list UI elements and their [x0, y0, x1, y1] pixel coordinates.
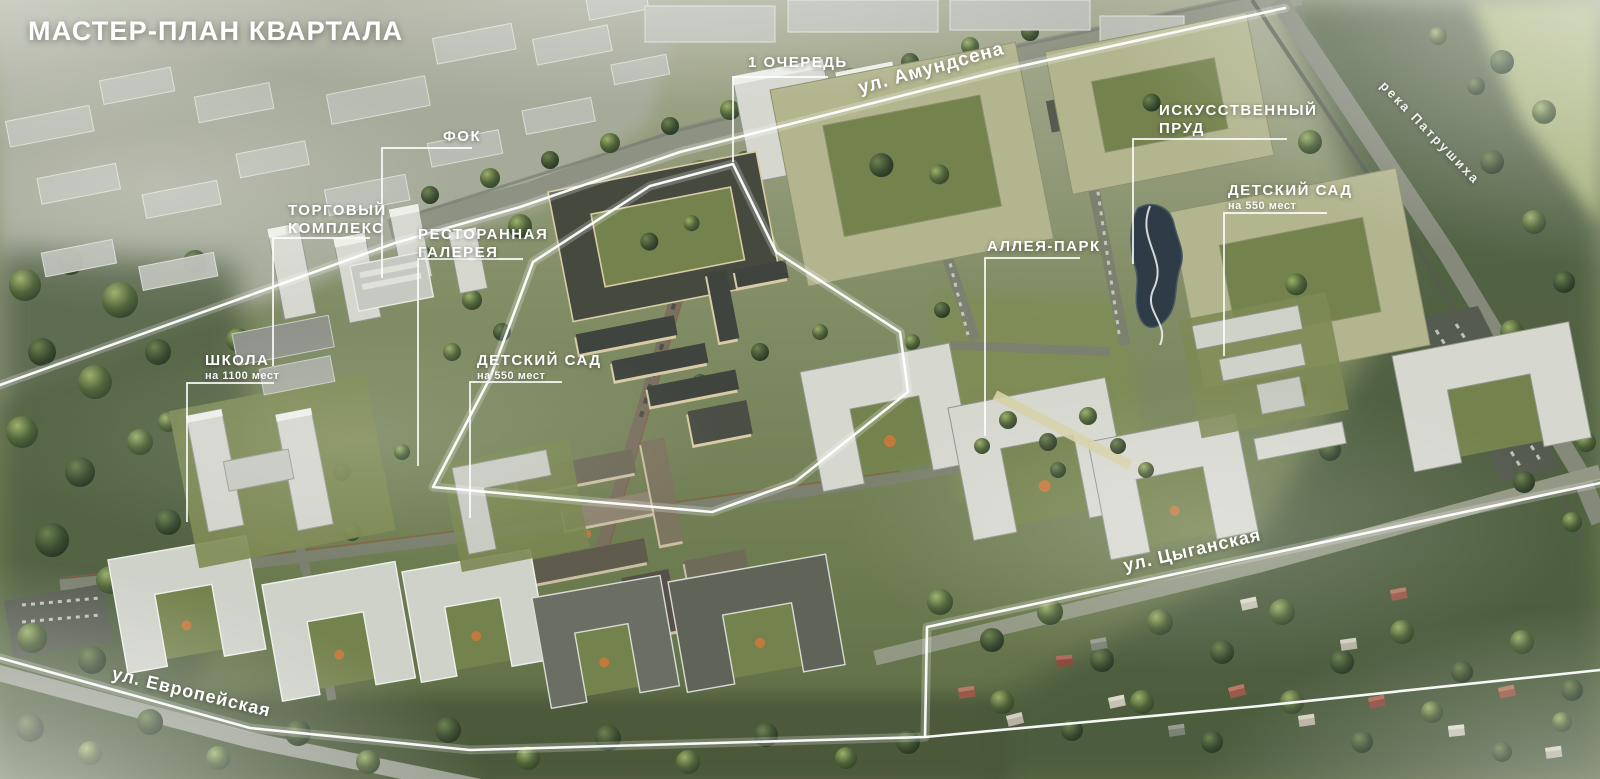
callout-pond-line1: ИСКУССТВЕННЫЙ: [1159, 102, 1317, 120]
callout-school-capacity: на 1100 мест: [205, 370, 279, 383]
callout-school: ШКОЛА на 1100 мест: [205, 352, 279, 383]
callout-shopping-line2: КОМПЛЕКС: [288, 220, 387, 238]
callout-alley-label: АЛЛЕЯ-ПАРК: [987, 238, 1101, 255]
callout-shopping-complex: ТОРГОВЫЙ КОМПЛЕКС: [288, 202, 387, 237]
masterplan-slide: МАСТЕР-ПЛАН КВАРТАЛА 1 ОЧЕРЕДЬ ФОК ТОРГО…: [0, 0, 1600, 779]
callout-restaurant-gallery: РЕСТОРАННАЯ ГАЛЕРЕЯ: [418, 226, 548, 261]
callout-school-label: ШКОЛА: [205, 352, 279, 370]
callout-fok-label: ФОК: [443, 128, 481, 145]
callout-kgl-label: ДЕТСКИЙ САД: [477, 352, 602, 370]
callout-restaurant-line1: РЕСТОРАННАЯ: [418, 226, 548, 244]
callout-alley-park: АЛЛЕЯ-ПАРК: [987, 238, 1101, 256]
callout-kgr-capacity: на 550 мест: [1228, 200, 1353, 213]
callout-phase1: 1 ОЧЕРЕДЬ: [748, 54, 848, 72]
callout-shopping-line1: ТОРГОВЫЙ: [288, 202, 387, 220]
callout-phase1-label: 1 ОЧЕРЕДЬ: [748, 54, 848, 71]
page-title: МАСТЕР-ПЛАН КВАРТАЛА: [28, 16, 403, 47]
callout-artificial-pond: ИСКУССТВЕННЫЙ ПРУД: [1159, 102, 1317, 137]
callout-kgl-capacity: на 550 мест: [477, 370, 602, 383]
callout-kgr-label: ДЕТСКИЙ САД: [1228, 182, 1353, 200]
callout-pond-line2: ПРУД: [1159, 120, 1317, 138]
callout-kindergarten-right: ДЕТСКИЙ САД на 550 мест: [1228, 182, 1353, 213]
callout-fok: ФОК: [443, 128, 481, 146]
callout-restaurant-line2: ГАЛЕРЕЯ: [418, 244, 548, 262]
masterplan-render: [0, 0, 1600, 779]
callout-kindergarten-left: ДЕТСКИЙ САД на 550 мест: [477, 352, 602, 383]
